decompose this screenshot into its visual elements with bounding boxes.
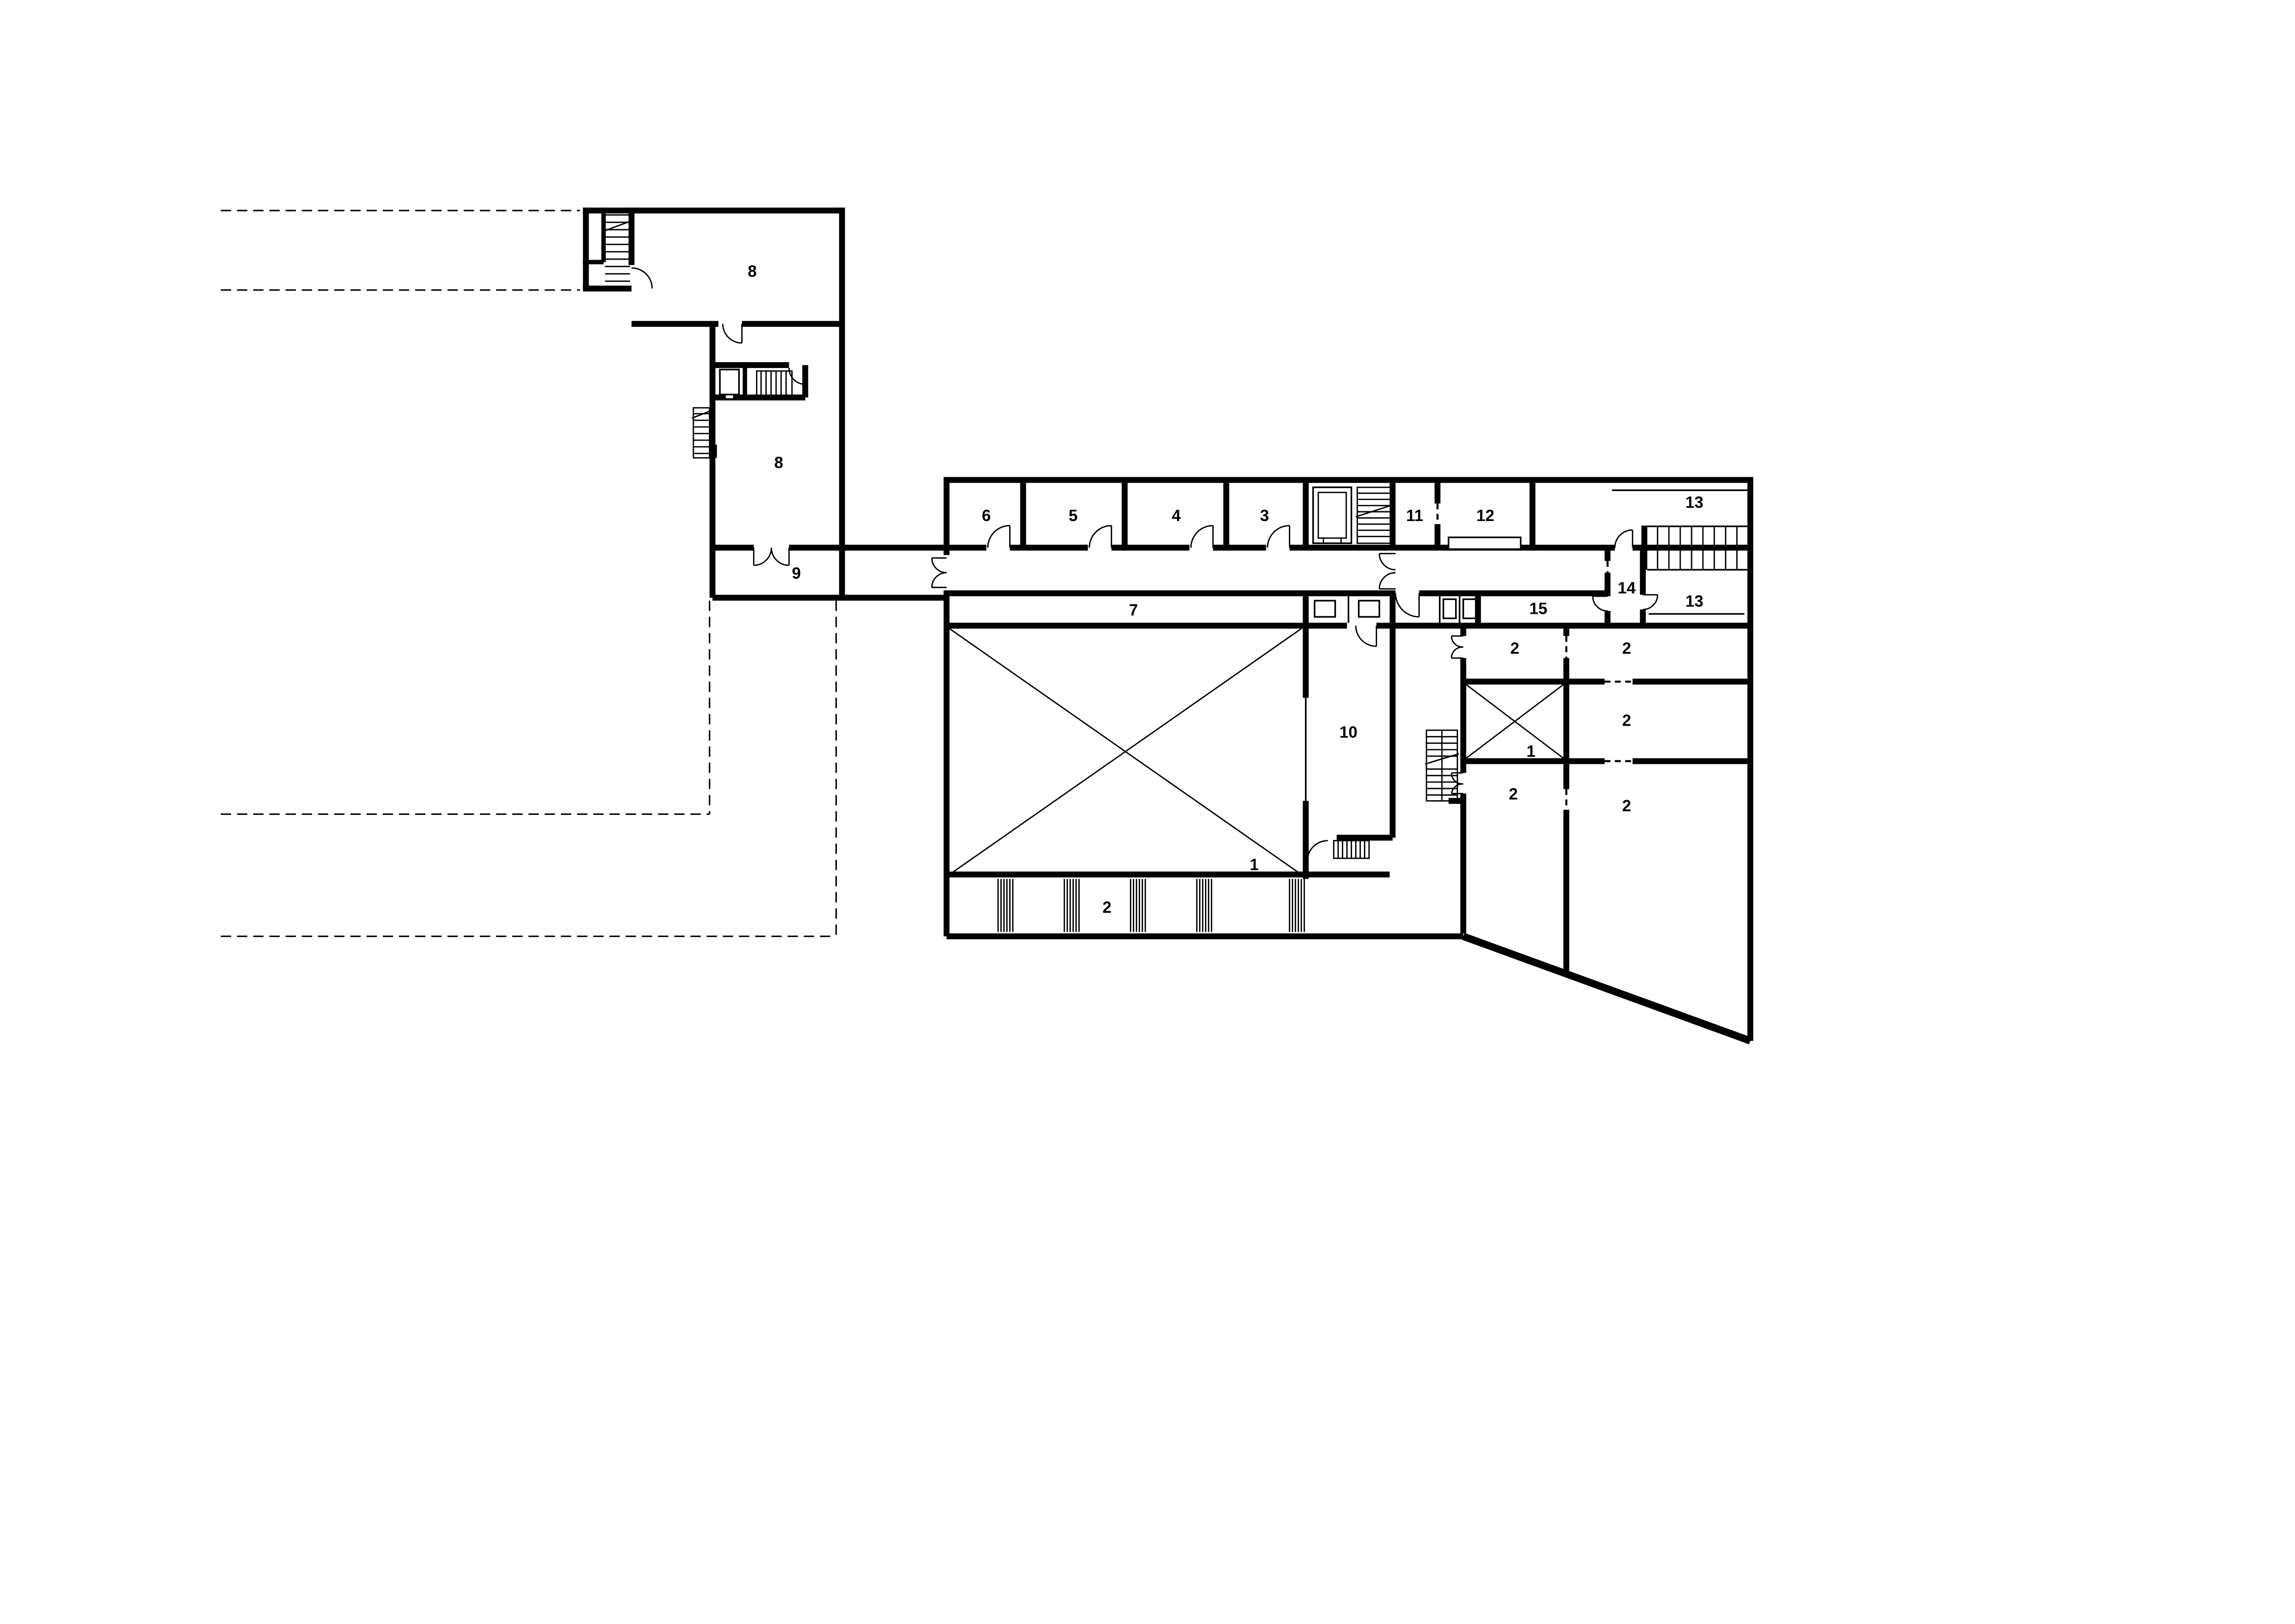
room-label: 10 xyxy=(1339,723,1357,741)
room-label: 15 xyxy=(1529,599,1547,617)
floor-plan-canvas: 889654311121314131571012222122 xyxy=(0,0,2295,1624)
room-label: 2 xyxy=(1622,639,1631,657)
staircase-exterior-west xyxy=(692,408,711,458)
double-door-corridor-cross xyxy=(1380,553,1396,589)
room-label: 8 xyxy=(748,262,756,280)
double-door-annex-link xyxy=(932,558,946,587)
room-labels: 889654311121314131571012222122 xyxy=(748,262,1703,916)
double-door-corridor9 xyxy=(754,548,789,565)
walls-left-annex xyxy=(583,208,946,598)
wc-fixture xyxy=(1443,599,1456,618)
walls-main-building xyxy=(946,477,1750,1041)
void-cross-small-room xyxy=(1466,684,1564,758)
site-boundary-dashed-line xyxy=(221,210,836,936)
double-door-wing-row1 xyxy=(1452,636,1463,658)
room-label: 13 xyxy=(1685,592,1703,610)
elevator-shaft xyxy=(1313,487,1352,543)
staircase-foyer xyxy=(1425,730,1459,801)
room-label: 3 xyxy=(1260,506,1269,524)
wc-fixture xyxy=(1359,601,1380,617)
room-label: 5 xyxy=(1069,506,1077,524)
room-label: 12 xyxy=(1476,506,1494,524)
room-label: 6 xyxy=(982,506,991,524)
facade-mullion-bands xyxy=(998,879,1304,932)
room-label: 2 xyxy=(1510,639,1519,657)
room-label: 14 xyxy=(1617,578,1636,597)
room-label: 1 xyxy=(1250,855,1258,873)
floor-plan-svg: 889654311121314131571012222122 xyxy=(0,0,2295,1624)
room-label: 7 xyxy=(1129,601,1138,619)
staircase-core xyxy=(1356,487,1393,543)
wc-fixture xyxy=(1463,599,1476,618)
annex-closet xyxy=(720,369,739,394)
diagonal-south-wall xyxy=(1463,936,1750,1041)
staircase-room10-lobby xyxy=(1334,840,1369,858)
wc-fixture xyxy=(1315,601,1335,617)
room-label: 11 xyxy=(1406,506,1423,524)
entry-step-block xyxy=(709,445,717,458)
counter-room12 xyxy=(1449,537,1521,549)
staircase-annex-lower xyxy=(756,371,792,396)
room-label: 2 xyxy=(1622,796,1631,814)
room-label: 13 xyxy=(1685,493,1703,511)
room-label: 2 xyxy=(1102,898,1111,916)
room-label: 2 xyxy=(1622,711,1631,729)
door-swings xyxy=(631,268,1657,861)
room-label: 8 xyxy=(774,453,783,471)
room-label: 2 xyxy=(1509,785,1517,803)
room-label: 4 xyxy=(1172,506,1181,524)
room-label: 1 xyxy=(1526,742,1535,760)
room-label: 9 xyxy=(792,564,801,582)
void-cross-main-hall xyxy=(949,629,1301,874)
staircase-top-left xyxy=(603,215,631,281)
